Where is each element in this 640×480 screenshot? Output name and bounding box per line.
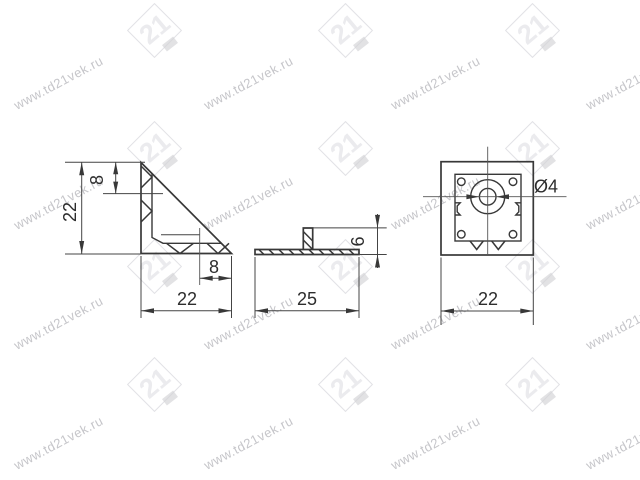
right-notch: [516, 203, 521, 215]
side-view-hatch: [141, 166, 229, 254]
arrowhead: [113, 182, 118, 194]
dim-side-height: 22: [60, 202, 80, 222]
arrowhead: [520, 309, 533, 314]
corner-hole: [509, 178, 517, 186]
side-view-outline: [141, 163, 232, 254]
arrowhead: [466, 194, 479, 199]
arrowhead: [219, 276, 232, 281]
arrowhead: [496, 194, 509, 199]
top-view: Ø4 22: [423, 147, 567, 325]
arrowhead: [113, 162, 118, 174]
arrowhead: [79, 241, 84, 254]
left-notch: [455, 203, 460, 215]
drawing-page: www.td21vek.ruwww.td21vek.ruwww.td21vek.…: [0, 0, 640, 480]
side-view: 22 8 8 22: [60, 162, 232, 318]
arrowhead: [375, 255, 380, 268]
arrowhead: [79, 162, 84, 175]
dim-side-hole-offset: 8: [209, 257, 219, 277]
dim-side-width: 22: [177, 289, 197, 309]
arrowhead: [346, 308, 359, 313]
dim-side-top-offset: 8: [87, 175, 107, 185]
arrowhead: [219, 308, 232, 313]
front-view-plate-hatch: [259, 250, 354, 255]
dim-hole-diameter: Ø4: [534, 177, 558, 197]
dim-front-length: 25: [297, 289, 317, 309]
front-view-rib-hatch: [303, 232, 312, 250]
arrowhead: [375, 215, 380, 228]
technical-drawing: 22 8 8 22: [0, 0, 640, 480]
arrowhead: [255, 308, 268, 313]
arrowhead: [441, 309, 454, 314]
dim-top-width: 22: [478, 289, 498, 309]
arrowhead: [141, 308, 154, 313]
corner-hole: [458, 231, 466, 239]
dim-front-height: 6: [348, 236, 368, 246]
front-view: 6 25: [255, 214, 387, 318]
corner-hole: [458, 178, 466, 186]
corner-hole: [509, 231, 517, 239]
